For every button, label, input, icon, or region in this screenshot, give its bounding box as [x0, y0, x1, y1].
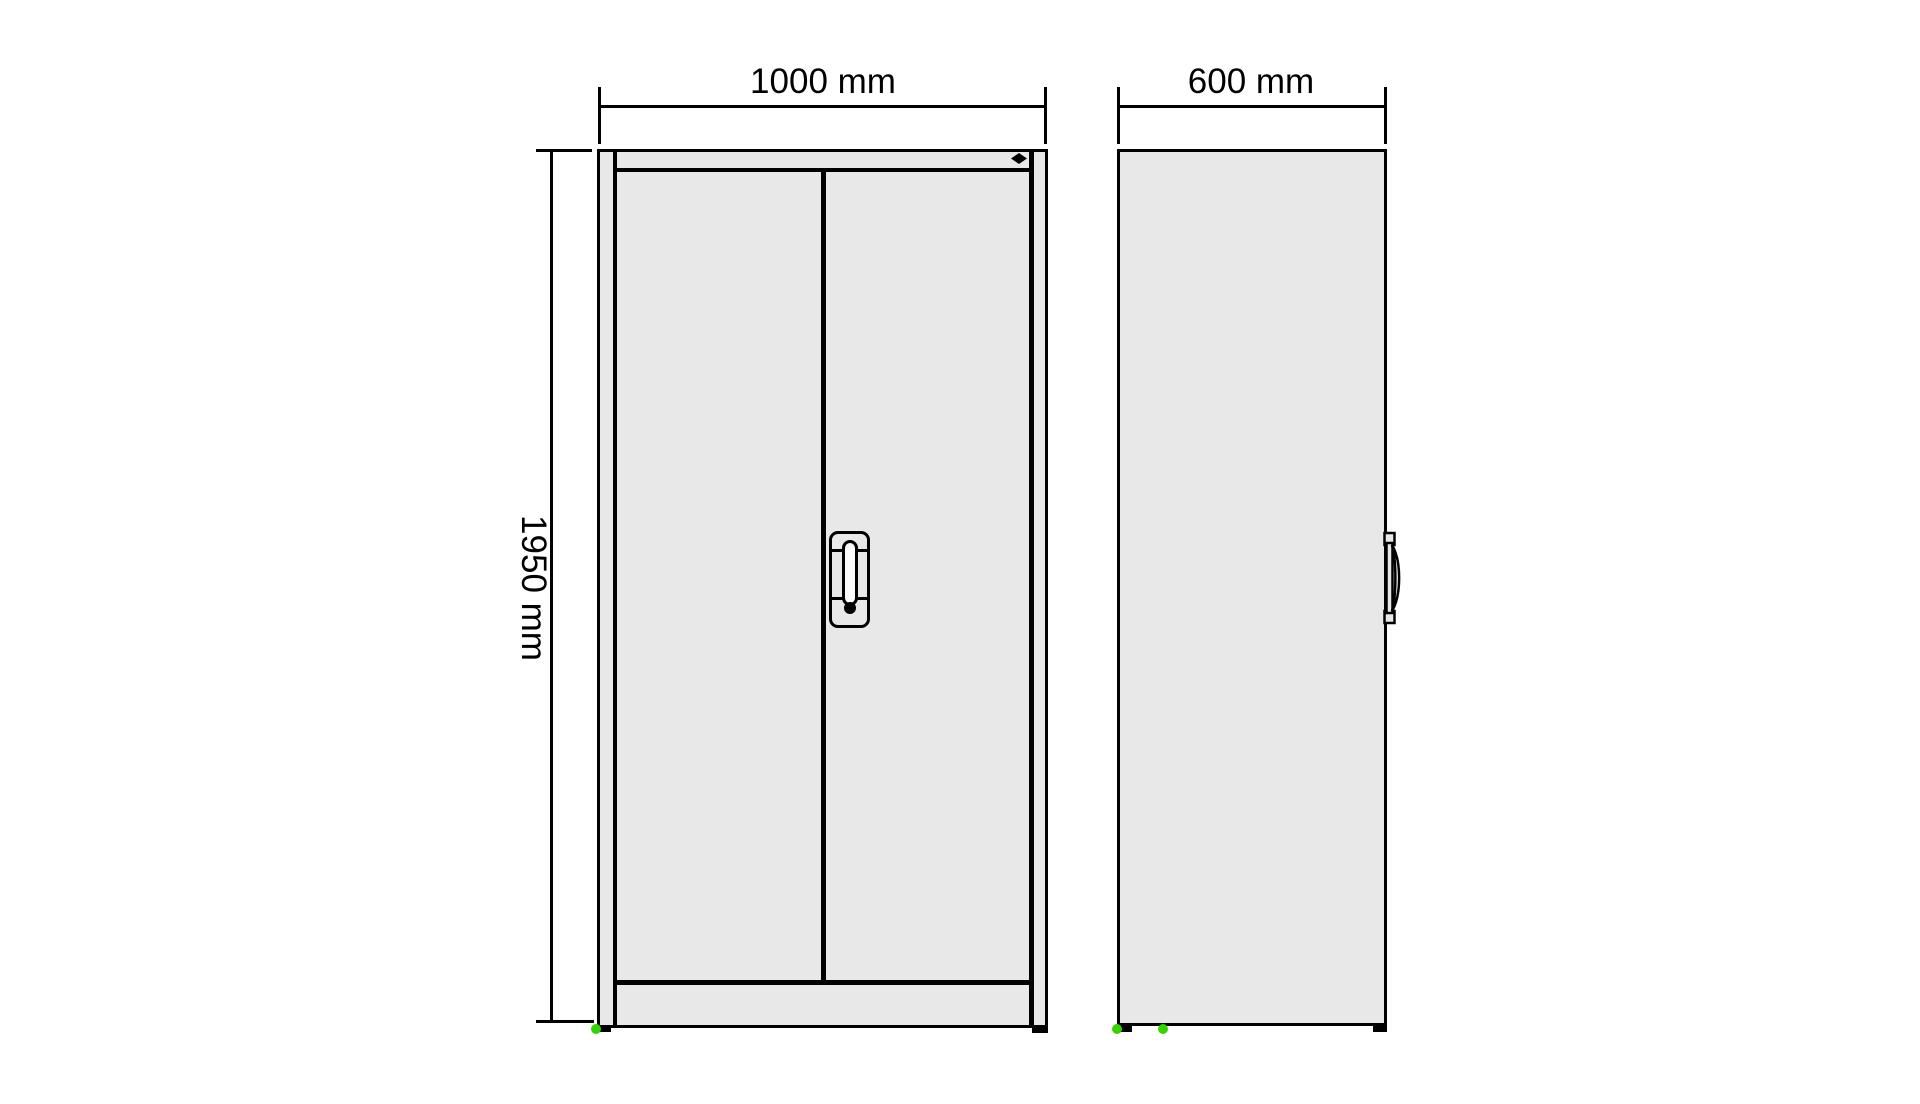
- front-right-frame-line: [1029, 151, 1034, 1026]
- side-handle-icon: [1383, 527, 1405, 629]
- front-foot-right: [1032, 1026, 1048, 1033]
- handle-grip-slot: [842, 540, 858, 606]
- side-foot-right: [1373, 1024, 1387, 1032]
- width-dimension-label: 1000 mm: [750, 62, 896, 102]
- depth-extension-line-right: [1384, 87, 1387, 144]
- side-green-foot-marker-left: [1112, 1024, 1122, 1034]
- height-dimension-line: [550, 150, 553, 1022]
- keyhole-icon: [844, 602, 856, 614]
- width-dimension-line: [598, 105, 1047, 108]
- depth-extension-line-left: [1117, 87, 1120, 144]
- front-left-frame-line: [613, 151, 617, 1026]
- depth-dimension-label: 600 mm: [1188, 62, 1314, 102]
- height-dimension-label: 1950 mm: [513, 468, 553, 708]
- front-door-divider-line: [821, 168, 826, 985]
- width-extension-line-right: [1044, 87, 1047, 144]
- side-green-foot-marker-right: [1158, 1024, 1168, 1034]
- height-extension-line-bottom: [536, 1020, 594, 1023]
- side-cabinet-outline: [1117, 149, 1387, 1026]
- depth-dimension-line: [1117, 105, 1387, 108]
- front-green-foot-marker: [591, 1024, 601, 1034]
- technical-drawing-canvas: 1000 mm 600 mm 1950 mm: [0, 0, 1920, 1104]
- height-extension-line-top: [536, 149, 592, 152]
- width-extension-line-left: [598, 87, 601, 144]
